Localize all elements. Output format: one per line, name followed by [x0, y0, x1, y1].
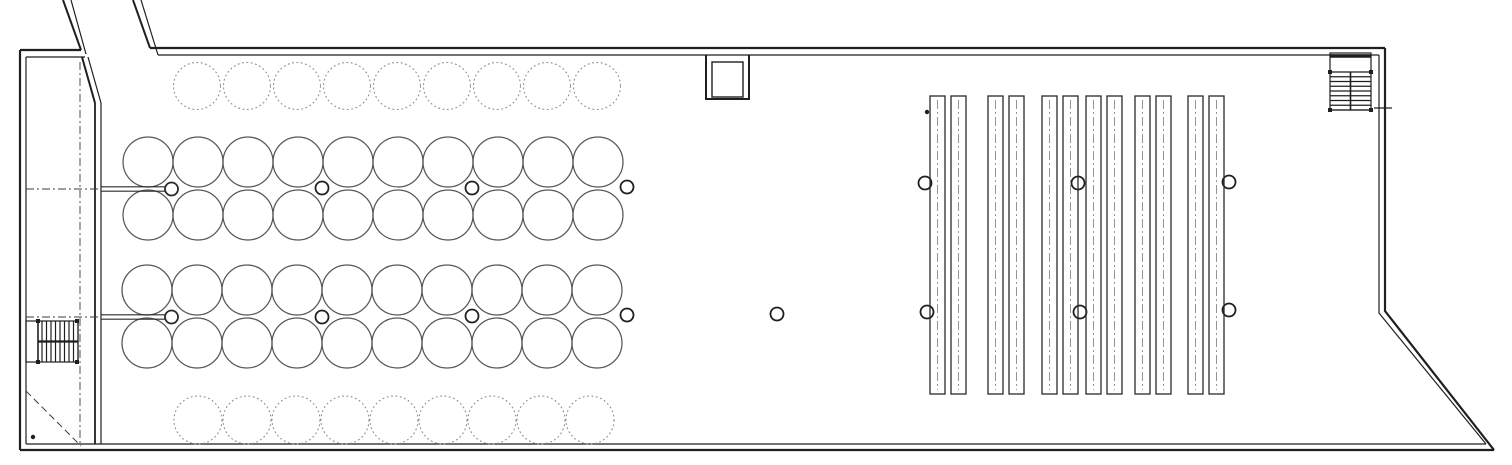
column-marker — [316, 311, 329, 324]
column-marker — [921, 306, 934, 319]
stair-post — [1369, 70, 1373, 74]
column-marker — [771, 308, 784, 321]
ink-dot — [31, 435, 35, 439]
column-marker — [621, 309, 634, 322]
column-marker — [466, 182, 479, 195]
stair-post — [36, 319, 40, 323]
column-marker — [1074, 306, 1087, 319]
stair-post — [36, 360, 40, 364]
column-marker — [165, 183, 178, 196]
column-marker — [165, 311, 178, 324]
column-marker — [621, 181, 634, 194]
stair-post — [1328, 70, 1332, 74]
stair-post — [1369, 108, 1373, 112]
paper-background — [0, 0, 1512, 465]
floor-plan-drawing — [0, 0, 1512, 465]
floor-plan-page — [0, 0, 1512, 465]
stair-post — [1328, 108, 1332, 112]
column-marker — [316, 182, 329, 195]
ink-dot — [925, 110, 929, 114]
stair-post — [75, 360, 79, 364]
column-marker — [466, 310, 479, 323]
stair-post — [75, 319, 79, 323]
